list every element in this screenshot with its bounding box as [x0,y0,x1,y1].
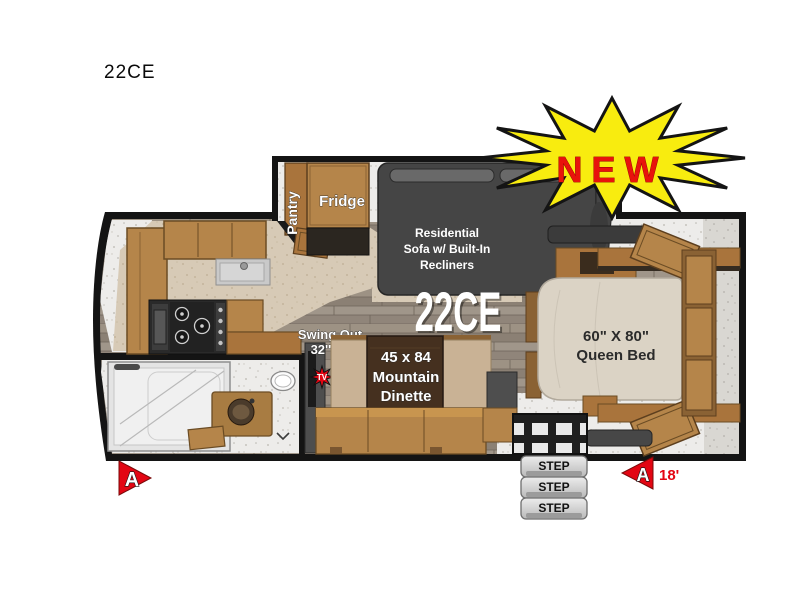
entry-steps: STEP STEP STEP [521,456,587,519]
model-callout: 22CE 22CE [415,281,504,346]
pantry-label: Pantry [284,191,300,235]
step-2-label: STEP [538,480,569,494]
wardrobe-door-2 [686,308,712,356]
bench-leg-1 [330,447,342,454]
marker-rear-distance: 18' [659,467,679,484]
marker-front: A [119,461,151,495]
step-1-label: STEP [538,459,569,473]
sofa-label-2: Sofa w/ Built-In [404,242,491,256]
floorplan-svg: 22CE [0,0,800,600]
bed-label-1: 60" X 80" [583,328,649,345]
bathroom-wall-right [299,353,305,456]
sofa-cushion-left [390,169,494,182]
tv-screen [308,351,316,407]
new-burst-label: NEW [557,149,668,190]
shower-head [114,364,140,370]
oven-window [154,310,166,344]
bench-leg-2 [430,447,442,454]
fridge-counter [307,228,369,255]
bedroom-bench [586,430,652,446]
booth-back-left [331,340,367,412]
dinette-label-1: 45 x 84 [381,349,432,366]
floorplan-image: 22CE [0,0,800,600]
bed-label-2: Queen Bed [576,347,655,364]
counter-end [227,300,263,332]
tv-star-label: TV [317,373,328,382]
bedroom-window-shelf [548,226,648,243]
sofa-label-1: Residential [415,226,479,240]
dinette: 45 x 84 Mountain Dinette [316,335,517,454]
step-3-label: STEP [538,501,569,515]
galley-counter [227,332,301,354]
wardrobe-door-1 [686,256,712,304]
marker-rear: A 18' [622,457,679,489]
bath-step-box [188,426,225,450]
entry-mat [513,414,587,454]
kitchen-counter-top [164,221,266,259]
dinette-label-3: Dinette [381,388,432,405]
bench-top-edge [316,408,486,417]
model-callout-text: 22CE [415,281,502,344]
dinette-side-cabinet [483,408,517,442]
sofa-label-3: Recliners [420,258,474,272]
booth-back-right [443,340,491,412]
page-title: 22CE [104,62,156,83]
bathroom [97,353,305,456]
marker-front-label: A [125,469,139,491]
vanity-sink-bowl [233,405,250,420]
dinette-label-2: Mountain [373,369,440,386]
toilet-seat [275,375,291,387]
vanity-faucet [250,399,255,404]
marker-rear-label: A [637,465,650,485]
fridge-label: Fridge [319,193,365,210]
kitchen-faucet [241,263,248,270]
wardrobe-door-3 [686,360,712,410]
